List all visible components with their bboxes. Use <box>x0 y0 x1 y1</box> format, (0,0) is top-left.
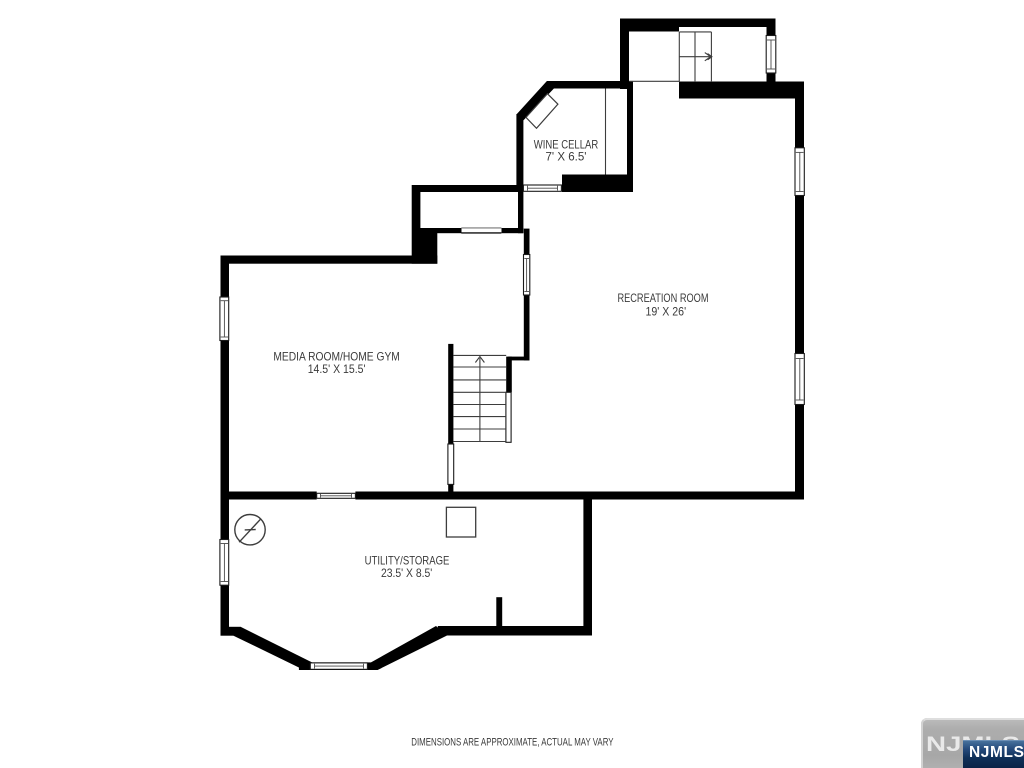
svg-text:DIMENSIONS ARE APPROXIMATE, AC: DIMENSIONS ARE APPROXIMATE, ACTUAL MAY V… <box>411 737 614 749</box>
svg-text:MEDIA ROOM/HOME GYM: MEDIA ROOM/HOME GYM <box>273 350 400 363</box>
svg-text:23.5' X 8.5': 23.5' X 8.5' <box>381 567 432 580</box>
svg-text:RECREATION ROOM: RECREATION ROOM <box>617 292 708 305</box>
svg-text:7' X 6.5': 7' X 6.5' <box>546 150 587 163</box>
svg-text:UTILITY/STORAGE: UTILITY/STORAGE <box>365 555 450 568</box>
svg-text:14.5' X 15.5': 14.5' X 15.5' <box>308 363 366 376</box>
svg-text:19' X 26': 19' X 26' <box>646 306 687 319</box>
